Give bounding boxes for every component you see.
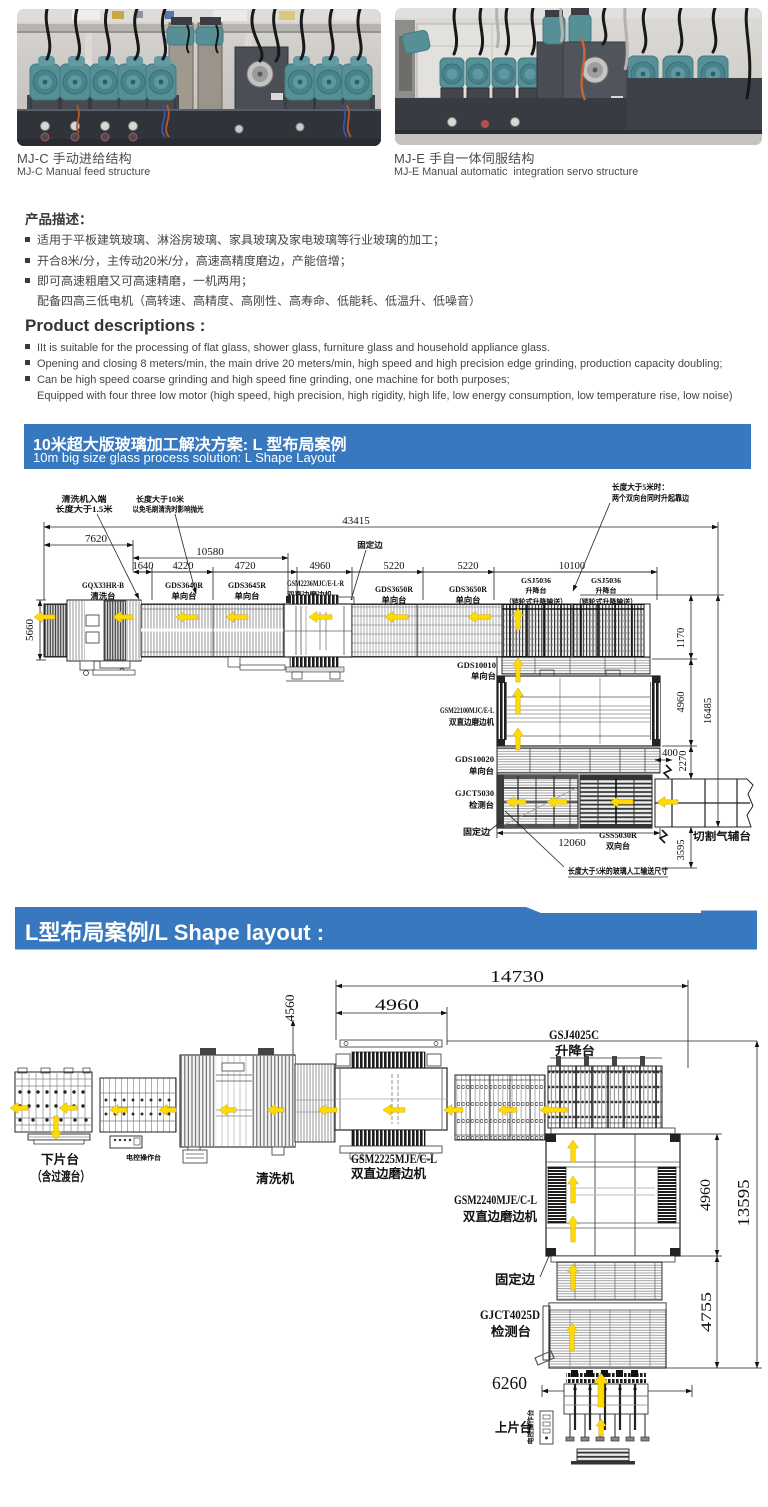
svg-text:电控操作台: 电控操作台 bbox=[526, 1410, 535, 1445]
svg-text:清洗机: 清洗机 bbox=[256, 1171, 294, 1186]
svg-text:GSJ4025C: GSJ4025C bbox=[549, 1028, 599, 1042]
svg-text:4755: 4755 bbox=[699, 1292, 715, 1332]
svg-text:GSM2225MJE/C-L: GSM2225MJE/C-L bbox=[351, 1151, 437, 1166]
svg-text:GJCT4025D: GJCT4025D bbox=[480, 1307, 540, 1322]
svg-text:13595: 13595 bbox=[734, 1180, 753, 1227]
svg-text:固定边: 固定边 bbox=[495, 1272, 536, 1287]
svg-text:（含过渡台）: （含过渡台） bbox=[32, 1169, 90, 1184]
svg-text:双直边磨边机: 双直边磨边机 bbox=[463, 1209, 537, 1224]
svg-text:双直边磨边机: 双直边磨边机 bbox=[351, 1166, 426, 1181]
svg-text:4560: 4560 bbox=[282, 995, 297, 1022]
svg-text:14730: 14730 bbox=[490, 967, 544, 986]
svg-text:电控操作台: 电控操作台 bbox=[126, 1153, 161, 1162]
svg-text:GSM2240MJE/C-L: GSM2240MJE/C-L bbox=[454, 1192, 537, 1207]
svg-text:下片台: 下片台 bbox=[41, 1152, 79, 1167]
svg-text:检测台: 检测台 bbox=[491, 1324, 531, 1339]
svg-text:升降台: 升降台 bbox=[555, 1044, 595, 1058]
svg-text:4960: 4960 bbox=[698, 1179, 714, 1211]
svg-text:4960: 4960 bbox=[375, 997, 419, 1014]
svg-text:6260: 6260 bbox=[492, 1373, 527, 1393]
